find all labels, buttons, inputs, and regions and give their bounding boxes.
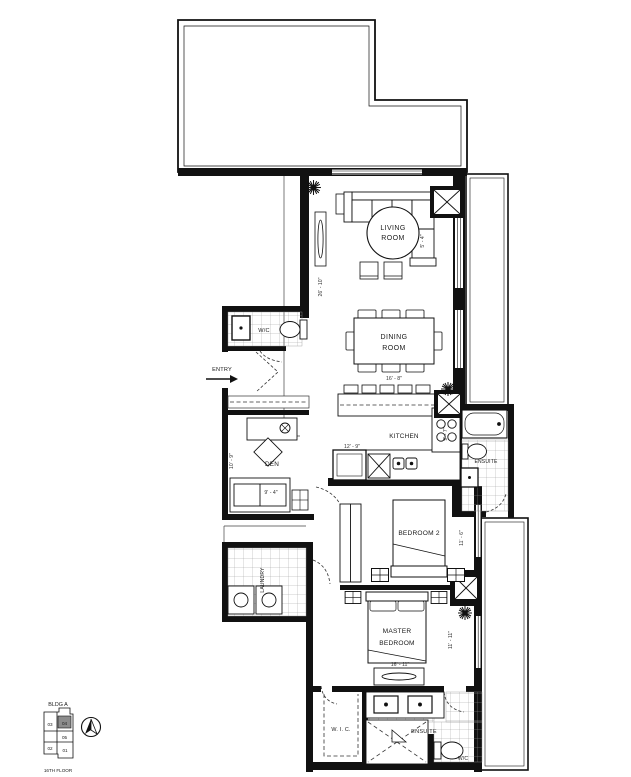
plant-icon	[441, 382, 455, 396]
kitchen-label: KITCHEN	[389, 433, 419, 440]
living-room-label-1: LIVING	[380, 225, 405, 232]
fridge-icon	[333, 450, 366, 480]
master-ensuite-label: ENSUITE	[411, 729, 437, 735]
keyplan-unit-05: 05	[62, 735, 68, 740]
entry-arrow-icon	[206, 375, 238, 383]
washer-icon	[228, 586, 254, 614]
double-vanity	[366, 692, 444, 718]
powder-sink-icon	[232, 316, 250, 340]
fan-coil-1	[430, 186, 464, 218]
bedroom2-dim: 11' - 6"	[459, 530, 465, 546]
den-dim-w: 9' - 4"	[264, 490, 277, 496]
powder-toilet-icon	[280, 320, 307, 339]
keyplan-unit-04: 04	[62, 721, 68, 726]
master-wc-label: W/C	[458, 756, 469, 762]
dining-room: DINING ROOM 16' - 8"	[346, 310, 442, 382]
den-label: DEN	[265, 461, 279, 468]
nightstand-icon	[372, 569, 389, 582]
tv-console	[315, 212, 326, 266]
powder-label: W/C	[258, 328, 269, 334]
dining-room-label-2: ROOM	[382, 345, 405, 352]
balcony-upper	[466, 174, 508, 406]
den-desk	[247, 418, 297, 440]
ensuite2-label: ENSUITE	[474, 459, 498, 465]
sofa-dim: 5' - 4"	[420, 234, 426, 247]
ensuite2-sink-icon	[461, 468, 478, 487]
den: DEN 10' - 9" 9' - 4"	[229, 418, 308, 512]
keyplan-floor-label: 16TH FLOOR	[44, 768, 73, 773]
floorplan-canvas: LIVING ROOM 26' - 10" 5' - 4" DINING ROO…	[0, 0, 631, 777]
dining-dim: 16' - 8"	[386, 376, 402, 382]
bedroom2-closet	[340, 504, 361, 582]
plant-icon	[458, 606, 472, 620]
keyplan: BLDG A 03 04 05 02 01 16TH FLOOR	[44, 702, 101, 773]
fan-coil-2	[434, 390, 464, 418]
living-dim-height: 26' - 10"	[318, 277, 324, 296]
kitchen-dim-d: 9' - 7"	[443, 427, 449, 440]
terrace-outline	[178, 20, 467, 172]
floorplan-drawing: LIVING ROOM 26' - 10" 5' - 4" DINING ROO…	[0, 0, 631, 777]
wic-label: W. I. C.	[331, 727, 350, 733]
den-dim-h: 10' - 9"	[229, 453, 235, 469]
entry-closet	[228, 396, 309, 408]
armchairs	[360, 262, 402, 279]
nightstand-icon	[448, 569, 465, 582]
plant-icon	[306, 180, 321, 195]
dining-table	[354, 318, 434, 364]
room-label-circle	[367, 207, 419, 259]
laundry-label: LAUNDRY	[260, 567, 266, 593]
keyplan-unit-03: 03	[47, 722, 53, 727]
nightstand-icon	[431, 591, 447, 603]
dining-room-label-1: DINING	[381, 334, 408, 341]
island-stools	[344, 385, 430, 393]
entry-label: ENTRY	[212, 367, 232, 373]
dresser	[374, 668, 424, 685]
bathtub-icon	[462, 410, 507, 438]
closet-rod	[324, 694, 358, 756]
master-label-2: BEDROOM	[379, 640, 414, 647]
keyplan-unit-01: 01	[62, 748, 68, 753]
master-dim-h: 11' - 11"	[448, 631, 454, 649]
den-loveseat	[230, 478, 290, 512]
keyplan-building-label: BLDG A	[48, 702, 68, 708]
bedroom2: BEDROOM 2 11' - 6"	[340, 500, 465, 582]
shower	[366, 720, 428, 764]
bed2	[391, 500, 447, 577]
bedroom2-label: BEDROOM 2	[398, 530, 440, 537]
ensuite2-toilet-icon	[462, 444, 487, 459]
keyplan-unit-02: 02	[47, 746, 53, 751]
living-room: LIVING ROOM 26' - 10" 5' - 4"	[315, 192, 436, 296]
nightstand-icon	[345, 591, 361, 603]
living-room-label-2: ROOM	[381, 235, 404, 242]
balcony-lower	[481, 518, 528, 770]
compass-icon	[82, 718, 101, 737]
entry: ENTRY	[206, 367, 238, 383]
kitchen-dim-w: 12' - 9"	[344, 444, 360, 450]
master-dim-w: 16' - 11"	[391, 662, 410, 668]
master-label-1: MASTER	[383, 628, 412, 635]
master-bedroom: MASTER BEDROOM 16' - 11" 11' - 11"	[345, 591, 454, 685]
wic: W. I. C.	[324, 694, 358, 756]
